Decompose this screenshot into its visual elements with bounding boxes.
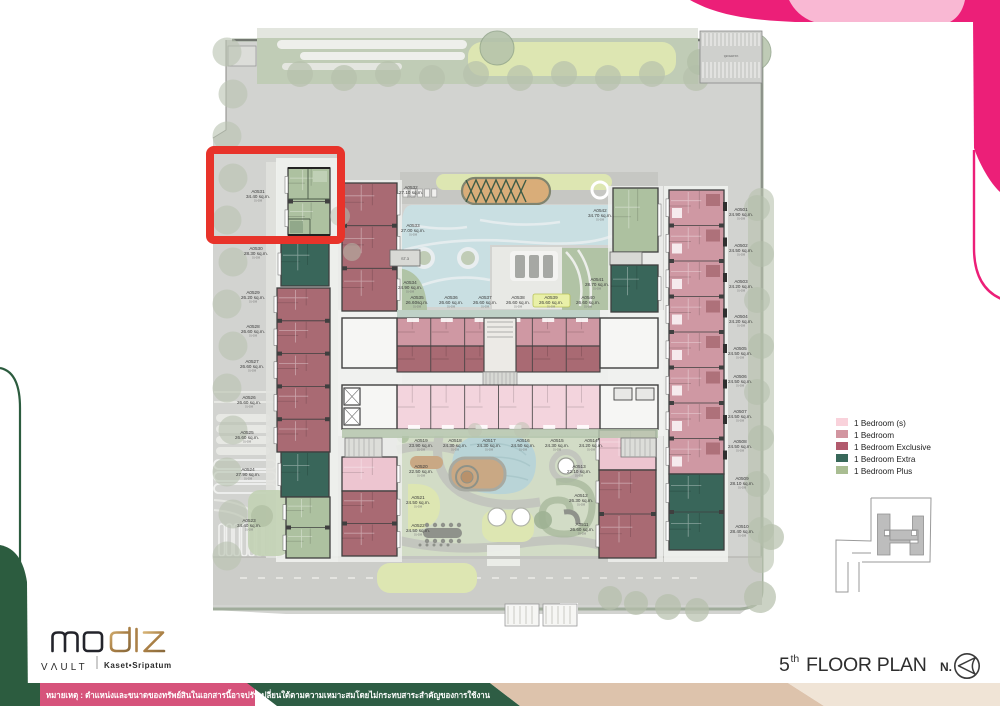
svg-text:1 Bedroom: 1 Bedroom xyxy=(854,431,894,440)
svg-text:24.50 sq.m.: 24.50 sq.m. xyxy=(728,351,752,356)
svg-text:24.50 sq.m.: 24.50 sq.m. xyxy=(406,528,430,533)
svg-text:26.30 sq.m.: 26.30 sq.m. xyxy=(569,498,593,503)
svg-text:01-008: 01-008 xyxy=(413,305,422,309)
svg-text:24.90 sq.m.: 24.90 sq.m. xyxy=(729,212,753,217)
svg-text:24.90 sq.m.: 24.90 sq.m. xyxy=(398,285,422,290)
svg-text:01-008: 01-008 xyxy=(737,289,746,293)
svg-text:01-008: 01-008 xyxy=(249,300,258,304)
svg-text:01-008: 01-008 xyxy=(519,448,528,452)
svg-text:5: 5 xyxy=(779,654,790,676)
svg-text:01-008: 01-008 xyxy=(738,534,747,538)
svg-text:23.90 sq.m.: 23.90 sq.m. xyxy=(409,443,433,448)
svg-text:01-008: 01-008 xyxy=(451,448,460,452)
svg-text:FLOOR PLAN: FLOOR PLAN xyxy=(806,654,927,676)
svg-text:26.60 sq.m.: 26.60 sq.m. xyxy=(439,300,463,305)
svg-text:01-008: 01-008 xyxy=(596,218,605,222)
svg-text:01-008: 01-008 xyxy=(514,305,523,309)
svg-text:24.20 sq.m.: 24.20 sq.m. xyxy=(729,284,753,289)
svg-text:01-008: 01-008 xyxy=(245,528,254,532)
svg-text:24.30 sq.m.: 24.30 sq.m. xyxy=(545,443,569,448)
svg-text:01-008: 01-008 xyxy=(447,305,456,309)
svg-text:26.60 sq.m.: 26.60 sq.m. xyxy=(240,364,264,369)
svg-text:01-008: 01-008 xyxy=(547,305,556,309)
svg-text:1 Bedroom Exclusive: 1 Bedroom Exclusive xyxy=(854,443,931,452)
svg-text:01-008: 01-008 xyxy=(245,405,254,409)
svg-text:26.60 sq.m.: 26.60 sq.m. xyxy=(576,300,600,305)
svg-text:01-008: 01-008 xyxy=(736,356,745,360)
svg-text:34.40 sq.m.: 34.40 sq.m. xyxy=(237,523,261,528)
svg-text:01-008: 01-008 xyxy=(406,290,415,294)
svg-text:24.50 sq.m.: 24.50 sq.m. xyxy=(406,500,430,505)
svg-text:24.50 sq.m.: 24.50 sq.m. xyxy=(729,248,753,253)
svg-text:01-008: 01-008 xyxy=(407,195,416,199)
svg-text:01-008: 01-008 xyxy=(254,199,263,203)
svg-text:01-008: 01-008 xyxy=(252,256,261,260)
svg-text:01-008: 01-008 xyxy=(409,233,418,237)
svg-text:26.60 sq.m.: 26.60 sq.m. xyxy=(539,300,563,305)
svg-text:01-008: 01-008 xyxy=(736,449,745,453)
svg-text:01-008: 01-008 xyxy=(248,369,257,373)
svg-text:Kaset•Sripatum: Kaset•Sripatum xyxy=(104,661,172,670)
svg-text:01-008: 01-008 xyxy=(417,448,426,452)
svg-text:01-008: 01-008 xyxy=(485,448,494,452)
svg-text:01-008: 01-008 xyxy=(244,477,253,481)
svg-text:1 Bedroom Extra: 1 Bedroom Extra xyxy=(854,455,916,464)
svg-text:01-008: 01-008 xyxy=(481,305,490,309)
svg-text:01-008: 01-008 xyxy=(587,448,596,452)
svg-text:24.20 sq.m.: 24.20 sq.m. xyxy=(579,443,603,448)
svg-text:1 Bedroom (s): 1 Bedroom (s) xyxy=(854,419,906,428)
svg-text:01-008: 01-008 xyxy=(249,334,258,338)
svg-text:26.60 sq.m.: 26.60 sq.m. xyxy=(570,527,594,532)
svg-text:34.40 sq.m.: 34.40 sq.m. xyxy=(246,194,270,199)
svg-text:01-008: 01-008 xyxy=(737,253,746,257)
svg-text:VΛULT: VΛULT xyxy=(41,662,88,673)
svg-text:01-008: 01-008 xyxy=(553,448,562,452)
svg-text:24.50 sq.m.: 24.50 sq.m. xyxy=(728,444,752,449)
svg-text:28.30 sq.m.: 28.30 sq.m. xyxy=(244,251,268,256)
svg-text:01-008: 01-008 xyxy=(417,474,426,478)
svg-text:01-008: 01-008 xyxy=(738,486,747,490)
svg-text:01-008: 01-008 xyxy=(578,532,587,536)
svg-text:01-008: 01-008 xyxy=(414,533,423,537)
svg-text:24.50 sq.m.: 24.50 sq.m. xyxy=(728,379,752,384)
svg-text:01-008: 01-008 xyxy=(414,505,423,509)
svg-text:01-008: 01-008 xyxy=(243,440,252,444)
svg-text:01-008: 01-008 xyxy=(736,384,745,388)
svg-text:01-008: 01-008 xyxy=(575,474,584,478)
svg-text:24.50 sq.m.: 24.50 sq.m. xyxy=(511,443,535,448)
svg-text:26.60 sq.m.: 26.60 sq.m. xyxy=(235,435,259,440)
svg-text:27.10 sq.m.: 27.10 sq.m. xyxy=(399,190,423,195)
svg-text:24.50 sq.m.: 24.50 sq.m. xyxy=(728,414,752,419)
svg-text:28.70 sq.m.: 28.70 sq.m. xyxy=(585,282,609,287)
svg-text:26.60 sq.m.: 26.60 sq.m. xyxy=(241,329,265,334)
svg-text:26.60 sq.m.: 26.60 sq.m. xyxy=(237,400,261,405)
svg-text:ST.3: ST.3 xyxy=(401,256,410,261)
svg-text:22.10 sq.m.: 22.10 sq.m. xyxy=(567,469,591,474)
svg-text:01-008: 01-008 xyxy=(737,324,746,328)
svg-text:24.20 sq.m.: 24.20 sq.m. xyxy=(729,319,753,324)
svg-text:28.40 sq.m.: 28.40 sq.m. xyxy=(730,529,754,534)
svg-text:27.90 sq.m.: 27.90 sq.m. xyxy=(236,472,260,477)
svg-text:27.00 sq.m.: 27.00 sq.m. xyxy=(401,228,425,233)
svg-text:01-008: 01-008 xyxy=(737,217,746,221)
svg-text:24.30 sq.m.: 24.30 sq.m. xyxy=(477,443,501,448)
svg-text:26.60 sq.m.: 26.60 sq.m. xyxy=(473,300,497,305)
svg-text:26.60 sq.m.: 26.60 sq.m. xyxy=(506,300,530,305)
svg-text:24.30 sq.m.: 24.30 sq.m. xyxy=(443,443,467,448)
svg-text:N.: N. xyxy=(940,660,952,674)
svg-text:01-008: 01-008 xyxy=(593,287,602,291)
svg-text:28.10 sq.m.: 28.10 sq.m. xyxy=(730,481,754,486)
svg-text:26.60sq.m.: 26.60sq.m. xyxy=(406,300,429,305)
svg-text:01-008: 01-008 xyxy=(736,419,745,423)
svg-text:01-008: 01-008 xyxy=(584,305,593,309)
svg-text:1 Bedroom Plus: 1 Bedroom Plus xyxy=(854,467,912,476)
svg-text:34.70 sq.m.: 34.70 sq.m. xyxy=(588,213,612,218)
svg-text:01-008: 01-008 xyxy=(577,503,586,507)
svg-text:26.20 sq.m.: 26.20 sq.m. xyxy=(241,295,265,300)
svg-text:22.50 sq.m.: 22.50 sq.m. xyxy=(409,469,433,474)
svg-text:th: th xyxy=(791,653,800,665)
